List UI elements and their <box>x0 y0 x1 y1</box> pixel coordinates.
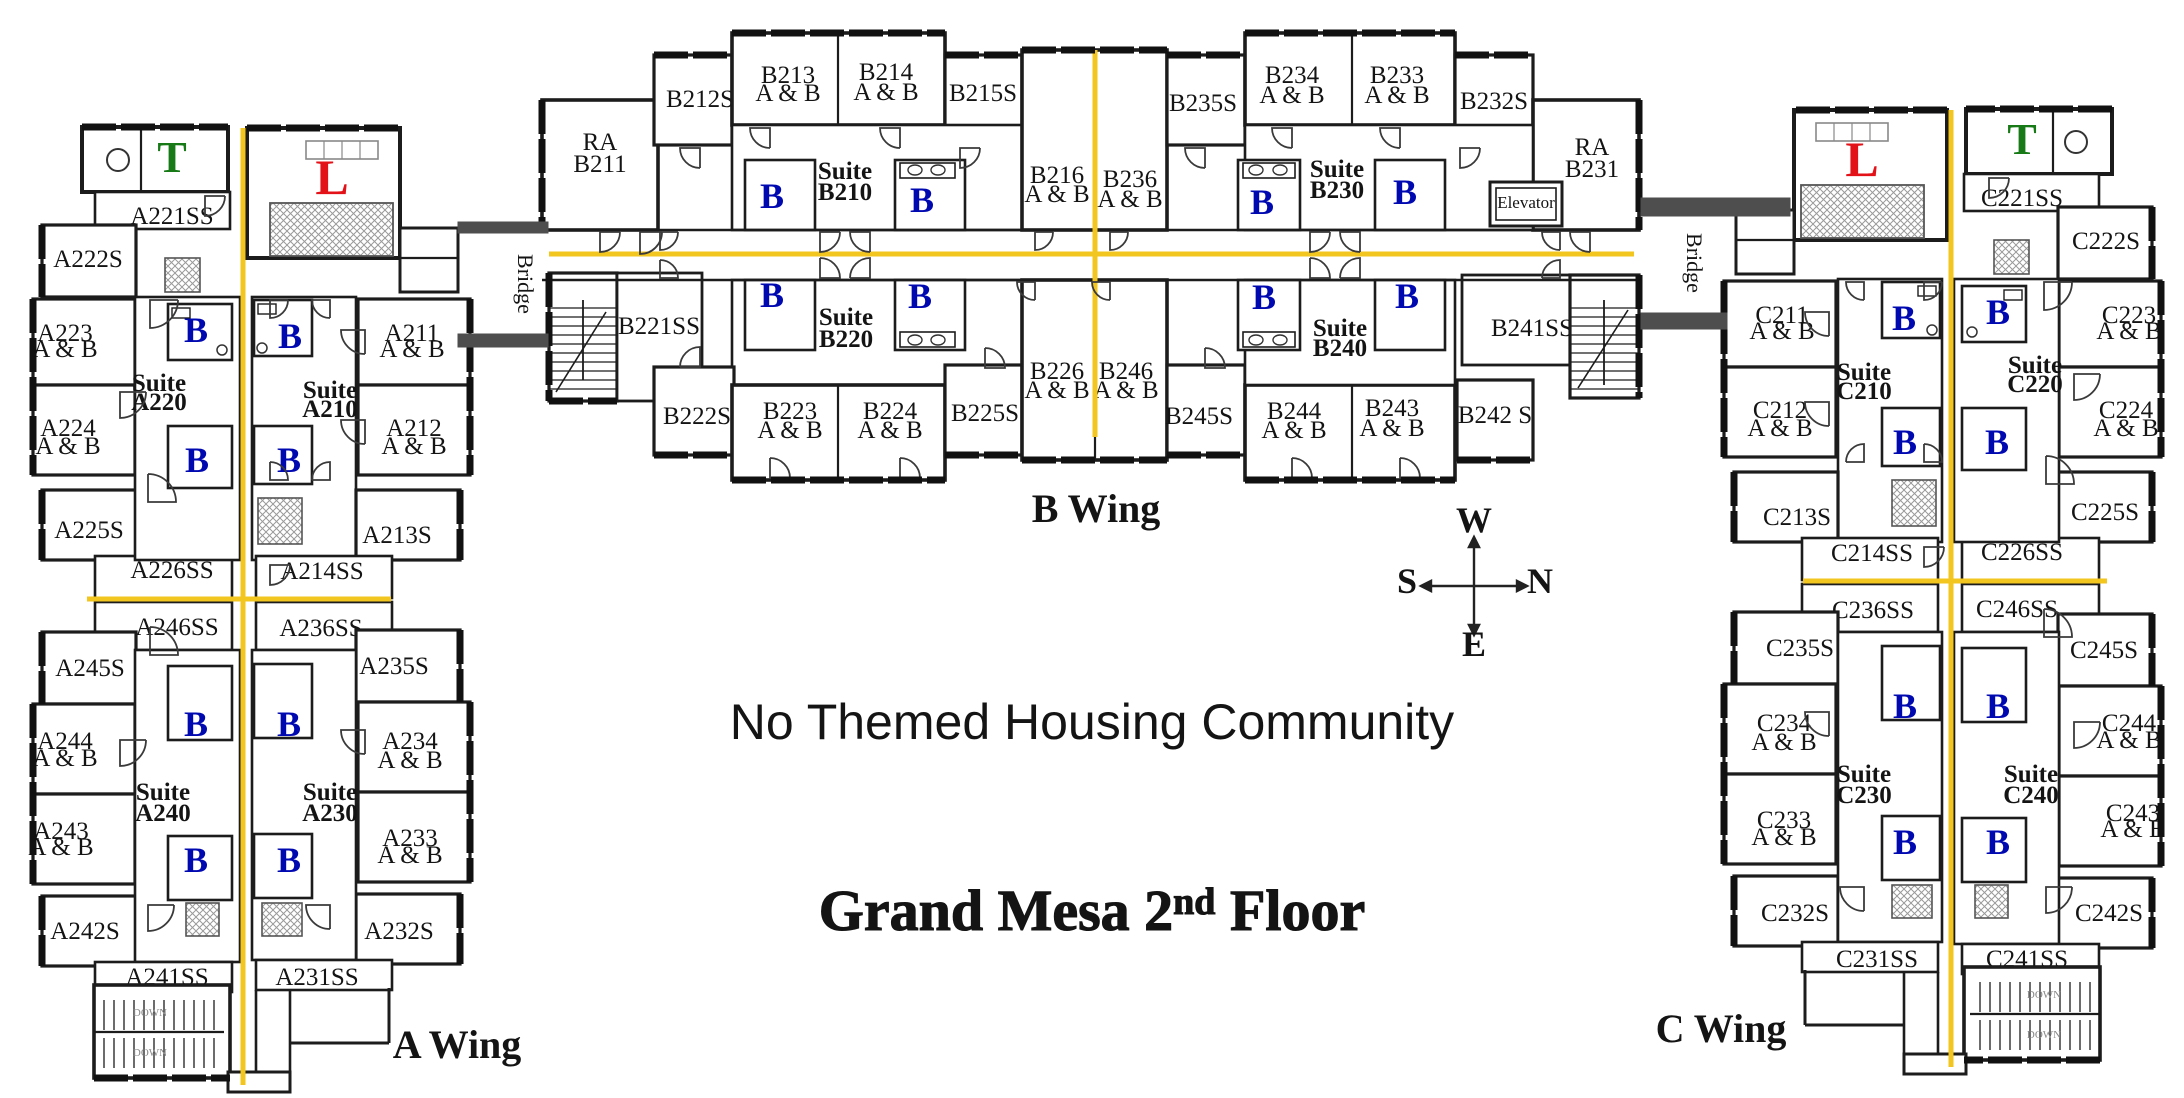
svg-text:A & B: A & B <box>2096 727 2161 754</box>
svg-text:B210: B210 <box>818 179 872 206</box>
svg-text:B221SS: B221SS <box>618 313 700 340</box>
svg-text:C225S: C225S <box>2071 499 2139 526</box>
svg-text:A & B: A & B <box>857 417 922 444</box>
svg-text:A & B: A & B <box>1749 318 1814 345</box>
svg-text:A & B: A & B <box>1359 415 1424 442</box>
svg-text:C231SS: C231SS <box>1836 946 1918 973</box>
svg-text:S: S <box>1397 561 1417 601</box>
svg-text:E: E <box>1462 624 1486 664</box>
svg-text:B225S: B225S <box>951 400 1019 427</box>
svg-text:B: B <box>184 704 208 744</box>
svg-text:A & B: A & B <box>2093 415 2158 442</box>
svg-text:A & B: A & B <box>381 433 446 460</box>
svg-text:A220: A220 <box>131 389 187 416</box>
svg-text:A232S: A232S <box>364 918 433 945</box>
svg-text:A235S: A235S <box>359 653 428 680</box>
svg-text:B: B <box>1893 822 1917 862</box>
svg-text:B: B <box>185 440 209 480</box>
svg-text:A & B: A & B <box>755 80 820 107</box>
svg-text:B: B <box>1395 276 1419 316</box>
svg-text:A236SS: A236SS <box>279 615 362 642</box>
svg-text:A210: A210 <box>302 396 358 423</box>
svg-text:No Themed Housing Community: No Themed Housing Community <box>730 694 1454 750</box>
svg-text:A240: A240 <box>135 800 191 827</box>
svg-text:A & B: A & B <box>379 336 444 363</box>
svg-text:A & B: A & B <box>1097 186 1162 213</box>
svg-text:Grand Mesa 2nd Floor: Grand Mesa 2nd Floor <box>819 878 1366 943</box>
svg-text:B Wing: B Wing <box>1032 486 1161 531</box>
svg-text:T: T <box>157 133 186 182</box>
svg-text:C Wing: C Wing <box>1656 1006 1787 1051</box>
svg-text:B: B <box>1393 172 1417 212</box>
svg-text:B: B <box>1893 422 1917 462</box>
svg-text:A & B: A & B <box>1751 824 1816 851</box>
svg-text:A242S: A242S <box>50 918 119 945</box>
svg-text:A214SS: A214SS <box>280 558 363 585</box>
svg-text:C236SS: C236SS <box>1832 597 1914 624</box>
svg-text:B220: B220 <box>819 326 873 353</box>
svg-text:C230: C230 <box>1836 782 1892 809</box>
svg-text:B: B <box>277 440 301 480</box>
svg-text:A & B: A & B <box>2096 318 2161 345</box>
svg-text:A222S: A222S <box>53 246 122 273</box>
svg-text:A & B: A & B <box>853 79 918 106</box>
svg-text:A & B: A & B <box>1259 82 1324 109</box>
svg-text:B211: B211 <box>573 151 626 178</box>
svg-text:B: B <box>278 316 302 356</box>
svg-text:B: B <box>1986 686 2010 726</box>
svg-text:A230: A230 <box>302 800 358 827</box>
svg-text:B240: B240 <box>1313 335 1367 362</box>
svg-text:C214SS: C214SS <box>1831 540 1913 567</box>
svg-text:B: B <box>1986 292 2010 332</box>
svg-text:A & B: A & B <box>32 336 97 363</box>
svg-text:DOWN: DOWN <box>2027 1029 2061 1041</box>
svg-text:C245S: C245S <box>2070 637 2138 664</box>
svg-text:B: B <box>1986 822 2010 862</box>
svg-text:B242 S: B242 S <box>1458 402 1532 429</box>
svg-text:L: L <box>1845 131 1878 187</box>
svg-text:A213S: A213S <box>362 522 431 549</box>
svg-text:DOWN: DOWN <box>2027 989 2061 1001</box>
svg-text:B245S: B245S <box>1165 403 1233 430</box>
svg-text:N: N <box>1527 561 1553 601</box>
svg-text:DOWN: DOWN <box>133 1047 167 1059</box>
svg-text:B: B <box>1893 686 1917 726</box>
svg-text:B: B <box>910 180 934 220</box>
svg-text:A & B: A & B <box>1024 377 1089 404</box>
svg-text:C221SS: C221SS <box>1981 185 2063 212</box>
svg-text:A & B: A & B <box>377 747 442 774</box>
svg-text:A245S: A245S <box>55 655 124 682</box>
svg-text:Elevator: Elevator <box>1497 193 1555 212</box>
svg-text:B235S: B235S <box>1169 90 1237 117</box>
svg-text:C235S: C235S <box>1766 635 1834 662</box>
svg-text:B: B <box>1892 298 1916 338</box>
svg-text:A246SS: A246SS <box>135 614 218 641</box>
svg-text:A & B: A & B <box>1261 417 1326 444</box>
svg-text:A221SS: A221SS <box>130 203 213 230</box>
svg-text:A & B: A & B <box>377 842 442 869</box>
svg-text:C222S: C222S <box>2072 228 2140 255</box>
svg-text:A231SS: A231SS <box>275 964 358 991</box>
svg-text:C240: C240 <box>2003 782 2059 809</box>
svg-text:B231: B231 <box>1565 156 1619 183</box>
svg-text:B: B <box>277 840 301 880</box>
svg-text:A225S: A225S <box>54 517 123 544</box>
svg-text:B212S: B212S <box>666 86 734 113</box>
svg-text:C232S: C232S <box>1761 900 1829 927</box>
svg-text:A & B: A & B <box>1093 377 1158 404</box>
svg-text:B222S: B222S <box>663 403 731 430</box>
svg-text:L: L <box>315 149 348 205</box>
svg-text:B: B <box>184 840 208 880</box>
svg-text:C242S: C242S <box>2075 900 2143 927</box>
svg-text:B: B <box>908 276 932 316</box>
svg-text:Bridge: Bridge <box>513 254 538 314</box>
svg-text:A & B: A & B <box>32 745 97 772</box>
svg-text:A & B: A & B <box>757 417 822 444</box>
svg-text:B: B <box>1252 277 1276 317</box>
svg-text:A & B: A & B <box>2100 816 2165 843</box>
svg-text:C210: C210 <box>1836 378 1892 405</box>
svg-text:B215S: B215S <box>949 80 1017 107</box>
svg-text:DOWN: DOWN <box>133 1007 167 1019</box>
svg-text:A & B: A & B <box>1751 729 1816 756</box>
svg-text:C220: C220 <box>2007 371 2063 398</box>
svg-text:C213S: C213S <box>1763 504 1831 531</box>
svg-text:B: B <box>1985 422 2009 462</box>
svg-text:A & B: A & B <box>28 834 93 861</box>
svg-text:B: B <box>184 310 208 350</box>
svg-text:B241SS: B241SS <box>1491 315 1573 342</box>
svg-text:W: W <box>1456 500 1492 540</box>
svg-text:B232S: B232S <box>1460 88 1528 115</box>
svg-text:A & B: A & B <box>1024 181 1089 208</box>
svg-text:A & B: A & B <box>35 433 100 460</box>
svg-text:B: B <box>277 704 301 744</box>
svg-text:T: T <box>2007 115 2036 164</box>
svg-text:A & B: A & B <box>1364 82 1429 109</box>
svg-text:B: B <box>760 176 784 216</box>
svg-text:B: B <box>1250 182 1274 222</box>
svg-text:A & B: A & B <box>1747 415 1812 442</box>
svg-text:B230: B230 <box>1310 177 1364 204</box>
svg-text:A Wing: A Wing <box>393 1022 522 1067</box>
svg-text:Bridge: Bridge <box>1682 233 1707 293</box>
